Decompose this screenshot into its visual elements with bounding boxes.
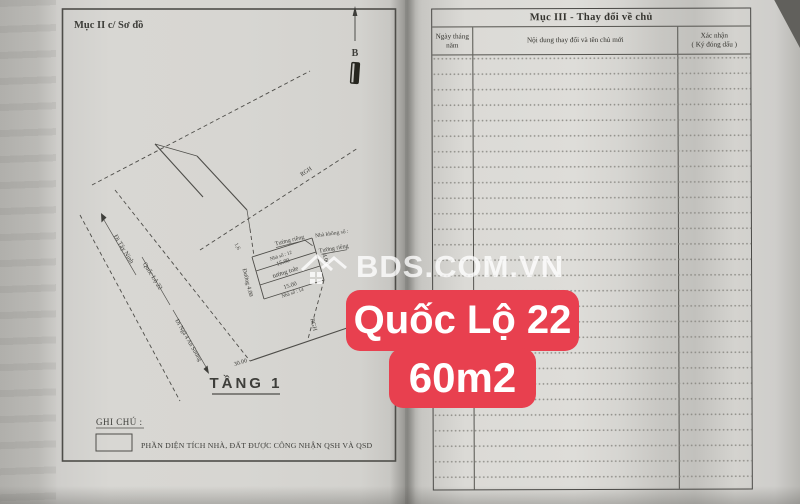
floor-label: TẦNG 1 [209, 375, 282, 392]
road-edge-west [80, 215, 180, 401]
col-header-content-label: Nội dung thay đổi và tên chủ mới [527, 36, 624, 45]
col-header-date-line1: Ngày tháng [436, 32, 469, 41]
boundary-line-upper [92, 71, 310, 185]
offset-dim-label: 1,6 [233, 242, 242, 251]
wall-tole-label: tường tole [272, 265, 300, 280]
notes-legend: PHẦN DIỆN TÍCH NHÀ, ĐẤT ĐƯỢC CÔNG NHẬN Q… [141, 440, 373, 450]
north-arrow-icon: B [350, 6, 361, 84]
svg-text:Đường 4.00: Đường 4.00 [241, 268, 254, 297]
north-label: B [352, 48, 359, 59]
label-to-tay-ninh: Đi Tây Ninh [112, 233, 136, 265]
house-logo-icon [300, 244, 350, 290]
table-header-row: Ngày tháng năm Nội dung thay đổi và tên … [432, 26, 750, 55]
col-header-content: Nội dung thay đổi và tên chủ mới [473, 27, 678, 55]
structure-lines [155, 144, 254, 256]
bottom-shadow [0, 486, 800, 504]
svg-text:Đi Ngã 4 An Sương: Đi Ngã 4 An Sương [173, 318, 202, 362]
area-badge-line2: 60m2 [389, 348, 536, 408]
alley-label: Đường 4.00 [241, 268, 254, 297]
frontage-line [250, 327, 350, 361]
notes-block: GHI CHÚ : PHẦN DIỆN TÍCH NHÀ, ĐẤT ĐƯỢC C… [96, 417, 373, 451]
col-header-confirm-line1: Xác nhận [701, 32, 728, 41]
col-header-date: Ngày tháng năm [432, 27, 473, 54]
svg-text:RGH: RGH [300, 166, 314, 178]
rgh-label-top: RGH [300, 166, 314, 178]
house-no-number-label: Nhà không số : [315, 228, 350, 240]
svg-text:30.00: 30.00 [233, 358, 248, 368]
table-title: Mục III - Thay đổi về chủ [432, 8, 750, 27]
col-header-confirm: Xác nhận ( Ký đóng dấu ) [678, 26, 750, 53]
area-badge-line1: Quốc Lộ 22 [346, 290, 579, 351]
label-to-an-suong: Đi Ngã 4 An Sương [173, 318, 202, 362]
legend-box [96, 434, 132, 451]
section-title: Mục II c/ Sơ đồ [74, 20, 143, 31]
label-road-name: Quốc Lộ 22 [141, 261, 163, 291]
site-plan-diagram: Mục II c/ Sơ đồ B RGH 1,6 Đi Tây Ninh Qu… [60, 5, 400, 465]
svg-text:tường tole: tường tole [272, 265, 300, 280]
notes-title: GHI CHÚ : [96, 417, 143, 427]
watermark: BDS.COM.VN [300, 242, 564, 292]
rgh-label-bottom: RGH [309, 318, 318, 332]
svg-text:Quốc Lộ 22: Quốc Lộ 22 [141, 261, 163, 291]
svg-text:Nhà không số :: Nhà không số : [315, 228, 350, 240]
page-edge-texture [0, 0, 56, 504]
col-header-confirm-line2: ( Ký đóng dấu ) [692, 40, 738, 49]
frontage-dim: 30.00 [233, 358, 248, 368]
svg-text:1,6: 1,6 [233, 242, 242, 251]
col-header-date-line2: năm [446, 41, 458, 50]
svg-text:RGH: RGH [309, 318, 318, 332]
watermark-text: BDS.COM.VN [356, 249, 564, 285]
svg-text:Đi Tây Ninh: Đi Tây Ninh [112, 233, 136, 265]
